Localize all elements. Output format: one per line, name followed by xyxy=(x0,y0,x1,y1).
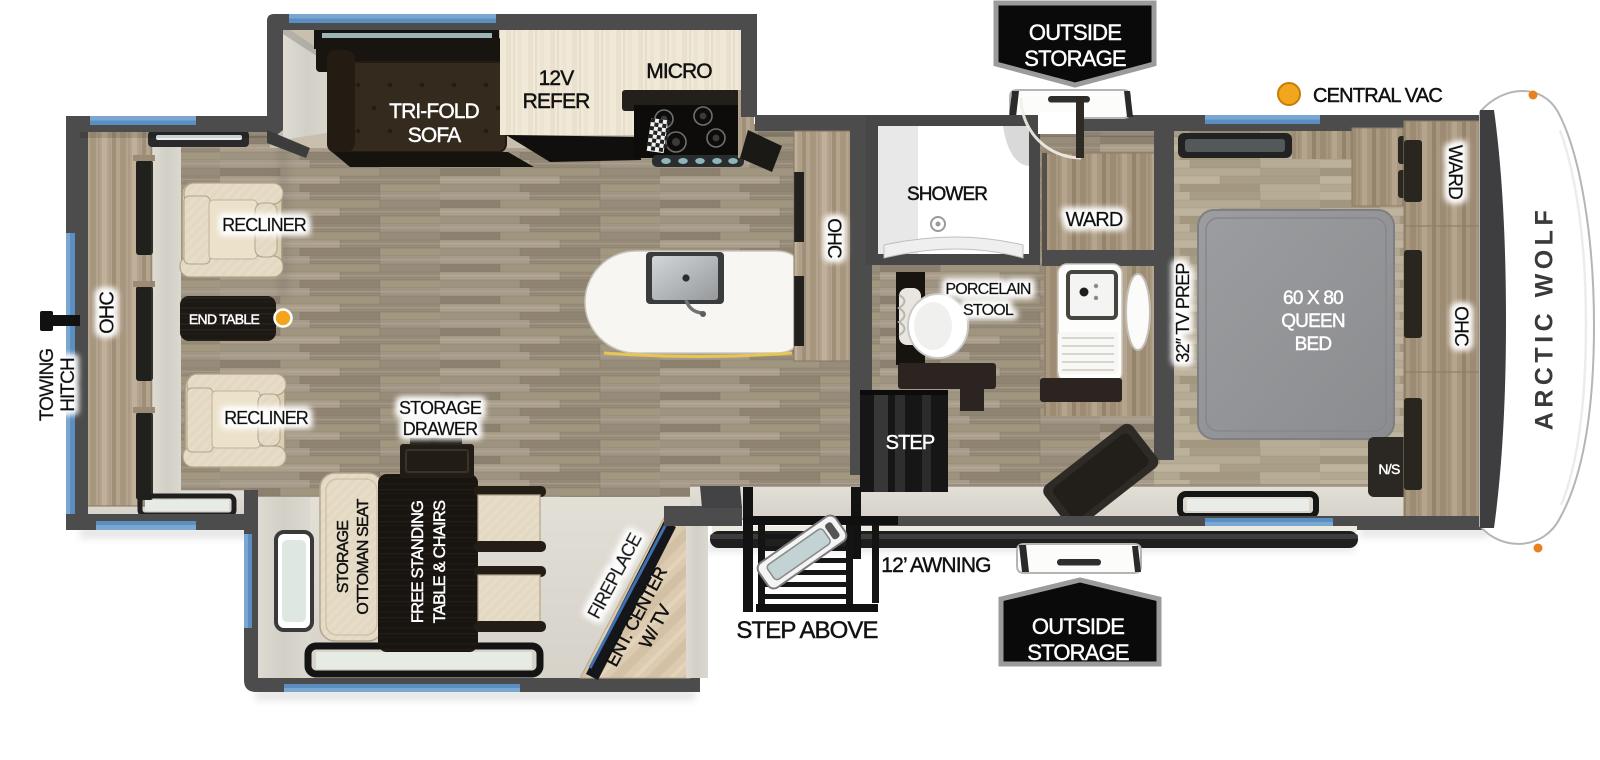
svg-text:RECLINER: RECLINER xyxy=(222,215,307,235)
svg-text:OHC: OHC xyxy=(823,218,844,258)
svg-text:OUTSIDESTORAGE: OUTSIDESTORAGE xyxy=(1027,614,1129,665)
svg-text:MICRO: MICRO xyxy=(646,60,712,83)
svg-text:WARD: WARD xyxy=(1444,145,1465,199)
svg-text:12’ AWNING: 12’ AWNING xyxy=(881,554,990,577)
svg-text:STORAGEDRAWER: STORAGEDRAWER xyxy=(399,398,482,439)
svg-text:ARCTIC WOLF: ARCTIC WOLF xyxy=(1531,206,1559,430)
svg-text:OHC: OHC xyxy=(1450,306,1471,346)
svg-text:OHC: OHC xyxy=(96,292,118,334)
svg-text:RECLINER: RECLINER xyxy=(224,408,309,428)
svg-text:WARD: WARD xyxy=(1066,209,1123,231)
svg-text:TOWINGHITCH: TOWINGHITCH xyxy=(37,349,79,421)
svg-text:STEP ABOVE: STEP ABOVE xyxy=(736,617,877,644)
svg-text:SHOWER: SHOWER xyxy=(907,184,987,205)
svg-text:END TABLE: END TABLE xyxy=(189,311,260,327)
svg-text:N/S: N/S xyxy=(1378,461,1400,477)
svg-text:CENTRAL VAC: CENTRAL VAC xyxy=(1313,85,1442,107)
svg-text:STEP: STEP xyxy=(886,432,935,454)
svg-text:OUTSIDESTORAGE: OUTSIDESTORAGE xyxy=(1024,20,1126,71)
svg-text:32″ TV PREP: 32″ TV PREP xyxy=(1173,263,1193,363)
